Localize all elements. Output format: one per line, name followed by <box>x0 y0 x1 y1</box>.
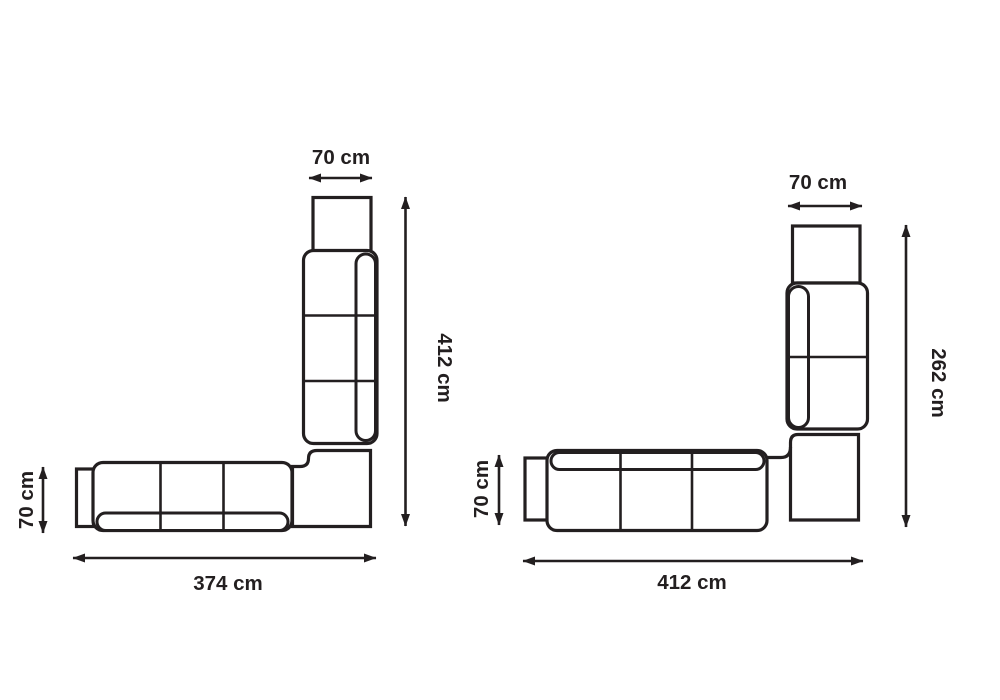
armrest-top <box>313 198 371 252</box>
dim-top: 70 cm <box>309 146 372 178</box>
dim-bottom: 374 cm <box>73 558 376 595</box>
dim-side: 412 cm <box>406 197 457 526</box>
dim-label-left: 70 cm <box>470 460 493 518</box>
sofa-diagram-left: 70 cm 412 cm 70 cm 374 cm <box>15 146 456 595</box>
dim-left: 70 cm <box>15 467 43 533</box>
corner-module <box>791 435 859 521</box>
dim-top: 70 cm <box>788 171 862 206</box>
armrest-left <box>525 458 548 520</box>
sofa-diagram-right: 70 cm 262 cm 70 cm 412 cm <box>470 171 950 594</box>
dim-bottom: 412 cm <box>523 561 863 594</box>
dim-label-side: 412 cm <box>433 333 456 403</box>
backrest-horizontal <box>97 513 288 531</box>
corner-module <box>293 451 371 527</box>
corner-connector <box>764 447 791 458</box>
dim-label-bottom: 412 cm <box>657 571 727 594</box>
backrest-horizontal <box>551 453 764 470</box>
dim-left: 70 cm <box>470 455 499 525</box>
dim-side: 262 cm <box>906 225 950 527</box>
dim-label-top: 70 cm <box>789 171 847 194</box>
sofa-dimension-diagram: 70 cm 412 cm 70 cm 374 cm <box>0 0 1000 700</box>
dim-label-side: 262 cm <box>927 348 950 418</box>
backrest-vertical <box>356 254 376 441</box>
armrest-left <box>77 469 94 527</box>
dim-label-left: 70 cm <box>15 471 38 529</box>
dim-label-bottom: 374 cm <box>193 572 263 595</box>
armrest-top <box>793 226 861 283</box>
diagram-canvas: 70 cm 412 cm 70 cm 374 cm <box>0 0 1000 700</box>
dim-label-top: 70 cm <box>312 146 370 169</box>
